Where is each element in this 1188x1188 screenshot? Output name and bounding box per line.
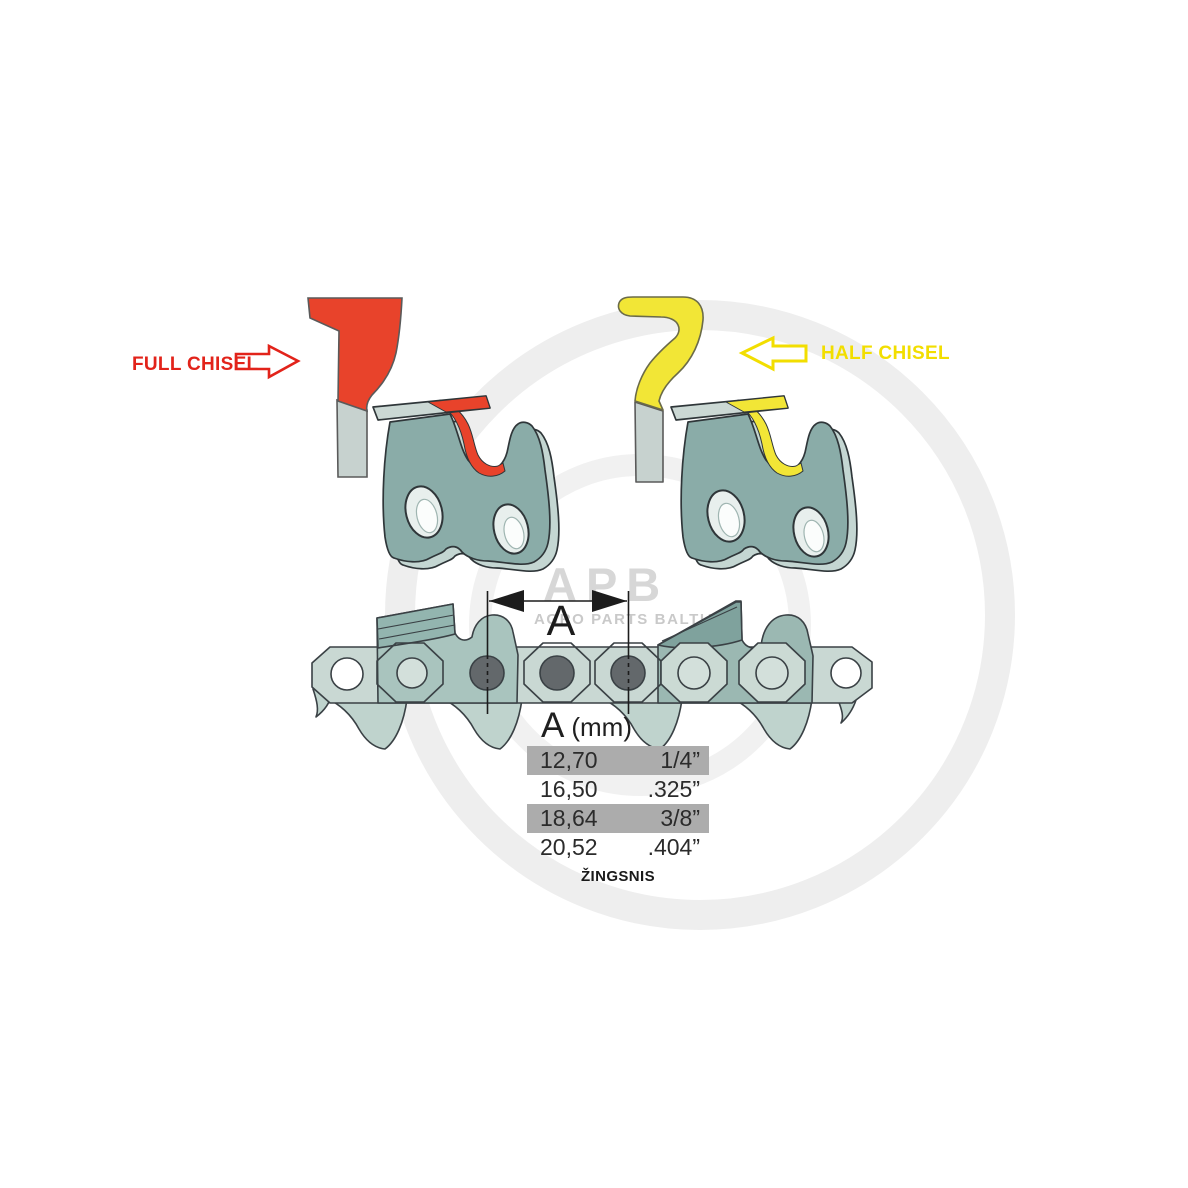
full-chisel-label: FULL CHISEL [132, 354, 258, 376]
pitch-table-caption: ŽINGSNIS [527, 868, 709, 885]
pitch-table-row: 20,52 .404” [527, 833, 709, 862]
pitch-inch-value: .325” [648, 776, 700, 803]
pitch-inch-value: .404” [648, 834, 700, 861]
end-hole-right [831, 658, 861, 688]
pitch-dimension-label: A [534, 597, 588, 646]
half-chisel-tooth-shape [618, 297, 703, 410]
pitch-inch-value: 3/8” [660, 805, 700, 832]
full-chisel-tooth-shape [308, 298, 402, 411]
pitch-table-header: A (mm) [527, 700, 709, 746]
end-hole-left [331, 658, 363, 690]
pitch-table-row: 18,64 3/8” [527, 804, 709, 833]
illustration-canvas: APB AGRO PARTS BALTIJA [0, 0, 1188, 1188]
pitch-mm-value: 20,52 [540, 834, 598, 861]
half-chisel-label: HALF CHISEL [821, 343, 950, 365]
pitch-table-header-unit: (mm) [571, 708, 632, 746]
profile-stem [337, 400, 367, 477]
pitch-table-header-dimension: A [541, 706, 564, 746]
full-chisel-cutter-3d [373, 396, 559, 571]
pitch-mm-value: 18,64 [540, 805, 598, 832]
pitch-mm-value: 16,50 [540, 776, 598, 803]
half-chisel-cutter-3d [671, 396, 857, 571]
profile-stem [635, 402, 663, 482]
chain-cutter-left [377, 604, 518, 703]
pitch-table-row: 12,70 1/4” [527, 746, 709, 775]
pitch-table-row: 16,50 .325” [527, 775, 709, 804]
pitch-mm-value: 12,70 [540, 747, 598, 774]
chainsaw-chain-spec-illustration: APB AGRO PARTS BALTIJA [0, 0, 1188, 1188]
rivet [540, 656, 574, 690]
pitch-table: A (mm) 12,70 1/4” 16,50 .325” 18,64 3/8”… [527, 700, 709, 885]
pitch-inch-value: 1/4” [660, 747, 700, 774]
